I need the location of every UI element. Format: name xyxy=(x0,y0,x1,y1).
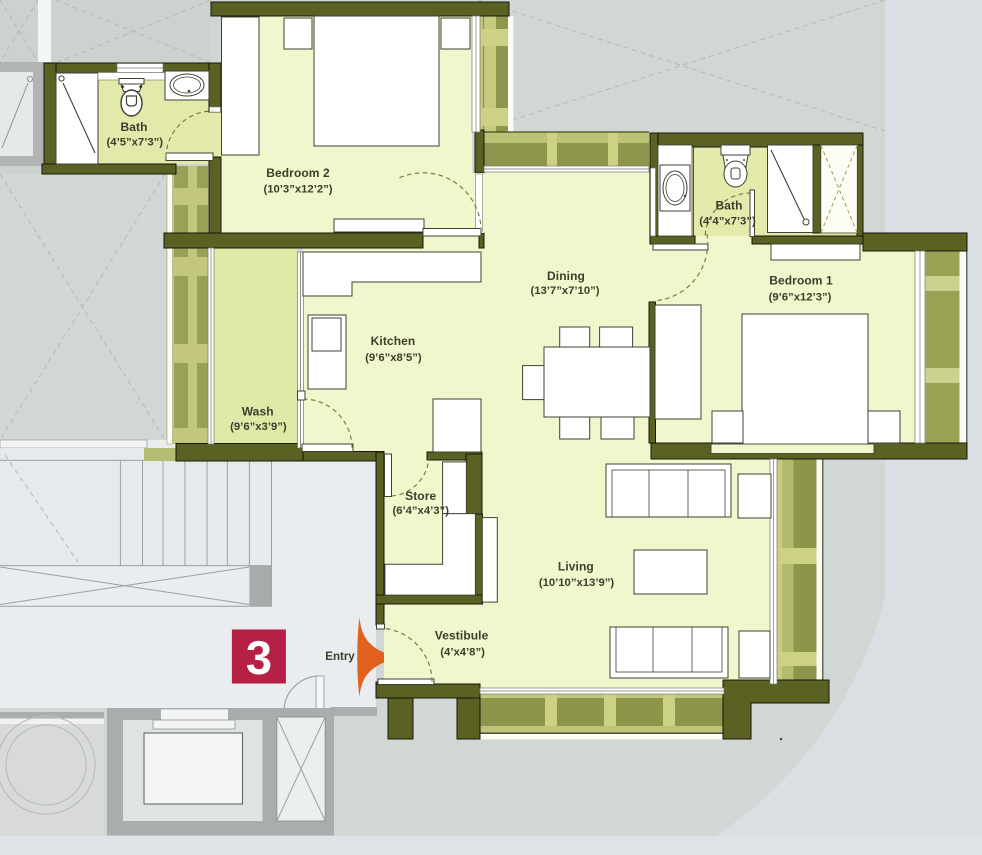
svg-text:(9’6”x3’9”): (9’6”x3’9”) xyxy=(230,421,287,433)
svg-text:(9’6”x12’3”): (9’6”x12’3”) xyxy=(769,292,832,304)
svg-text:Entry: Entry xyxy=(325,651,355,663)
svg-text:(4’5”x7’3”): (4’5”x7’3”) xyxy=(107,137,164,149)
svg-text:Bath: Bath xyxy=(120,120,147,134)
svg-text:(4’x4’8”): (4’x4’8”) xyxy=(440,647,485,659)
svg-text:3: 3 xyxy=(246,631,272,684)
svg-text:(10’10”x13’9”): (10’10”x13’9”) xyxy=(539,577,615,589)
svg-text:Bath: Bath xyxy=(715,199,742,213)
svg-text:(6’4”x4’3”): (6’4”x4’3”) xyxy=(392,505,449,517)
svg-text:Kitchen: Kitchen xyxy=(371,334,416,348)
svg-text:Wash: Wash xyxy=(242,405,274,419)
svg-text:Store: Store xyxy=(405,489,436,503)
svg-text:Dining: Dining xyxy=(547,269,585,283)
svg-text:Living: Living xyxy=(558,560,594,574)
svg-text:Bedroom 2: Bedroom 2 xyxy=(266,166,330,180)
svg-text:(9’6”x8’5”): (9’6”x8’5”) xyxy=(365,352,422,364)
svg-text:(4’4”x7’3”): (4’4”x7’3”) xyxy=(699,216,756,228)
svg-text:Bedroom 1: Bedroom 1 xyxy=(769,274,833,288)
svg-text:(10’3”x12’2”): (10’3”x12’2”) xyxy=(263,184,332,196)
svg-text:(13’7”x7’10”): (13’7”x7’10”) xyxy=(530,285,599,297)
svg-text:Vestibule: Vestibule xyxy=(435,629,489,643)
